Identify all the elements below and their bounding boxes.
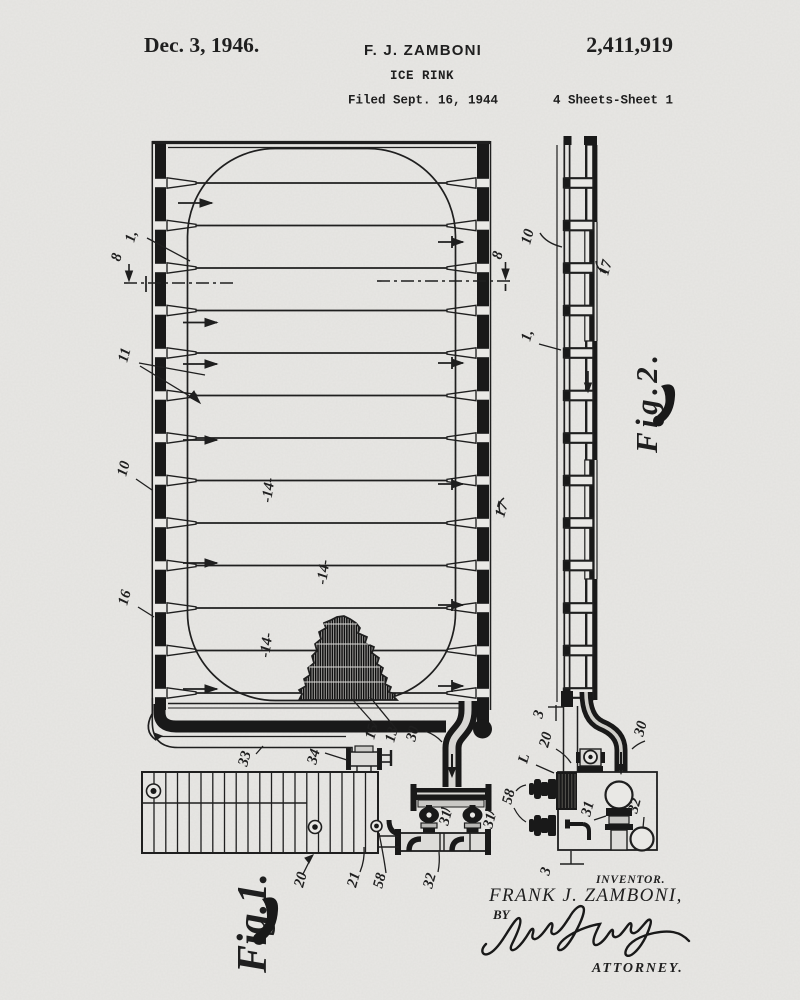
svg-text:Dec. 3, 1946.: Dec. 3, 1946. [144, 33, 259, 57]
svg-text:ATTORNEY.: ATTORNEY. [591, 961, 684, 976]
svg-text:FRANK J. ZAMBONI,: FRANK J. ZAMBONI, [488, 885, 683, 906]
svg-text:F. J. ZAMBONI: F. J. ZAMBONI [364, 42, 482, 59]
svg-text:ICE RINK: ICE RINK [390, 69, 454, 83]
svg-text:Fig.2.: Fig.2. [629, 355, 664, 454]
svg-text:4 Sheets-Sheet 1: 4 Sheets-Sheet 1 [553, 94, 673, 108]
svg-text:BY: BY [492, 907, 511, 922]
svg-text:Filed Sept. 16, 1944: Filed Sept. 16, 1944 [348, 94, 499, 108]
svg-text:2,411,919: 2,411,919 [586, 32, 673, 57]
